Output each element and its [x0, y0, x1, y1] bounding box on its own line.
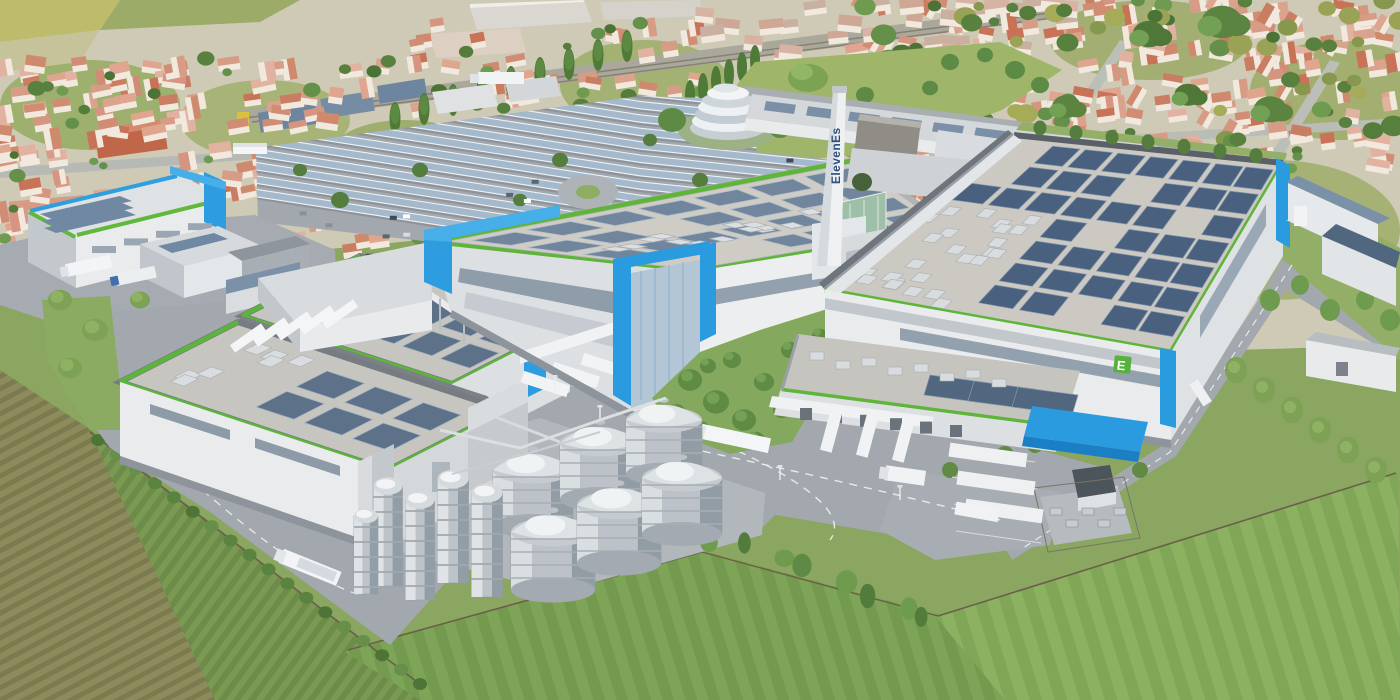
svg-text:ElevenEs: ElevenEs: [829, 127, 843, 184]
